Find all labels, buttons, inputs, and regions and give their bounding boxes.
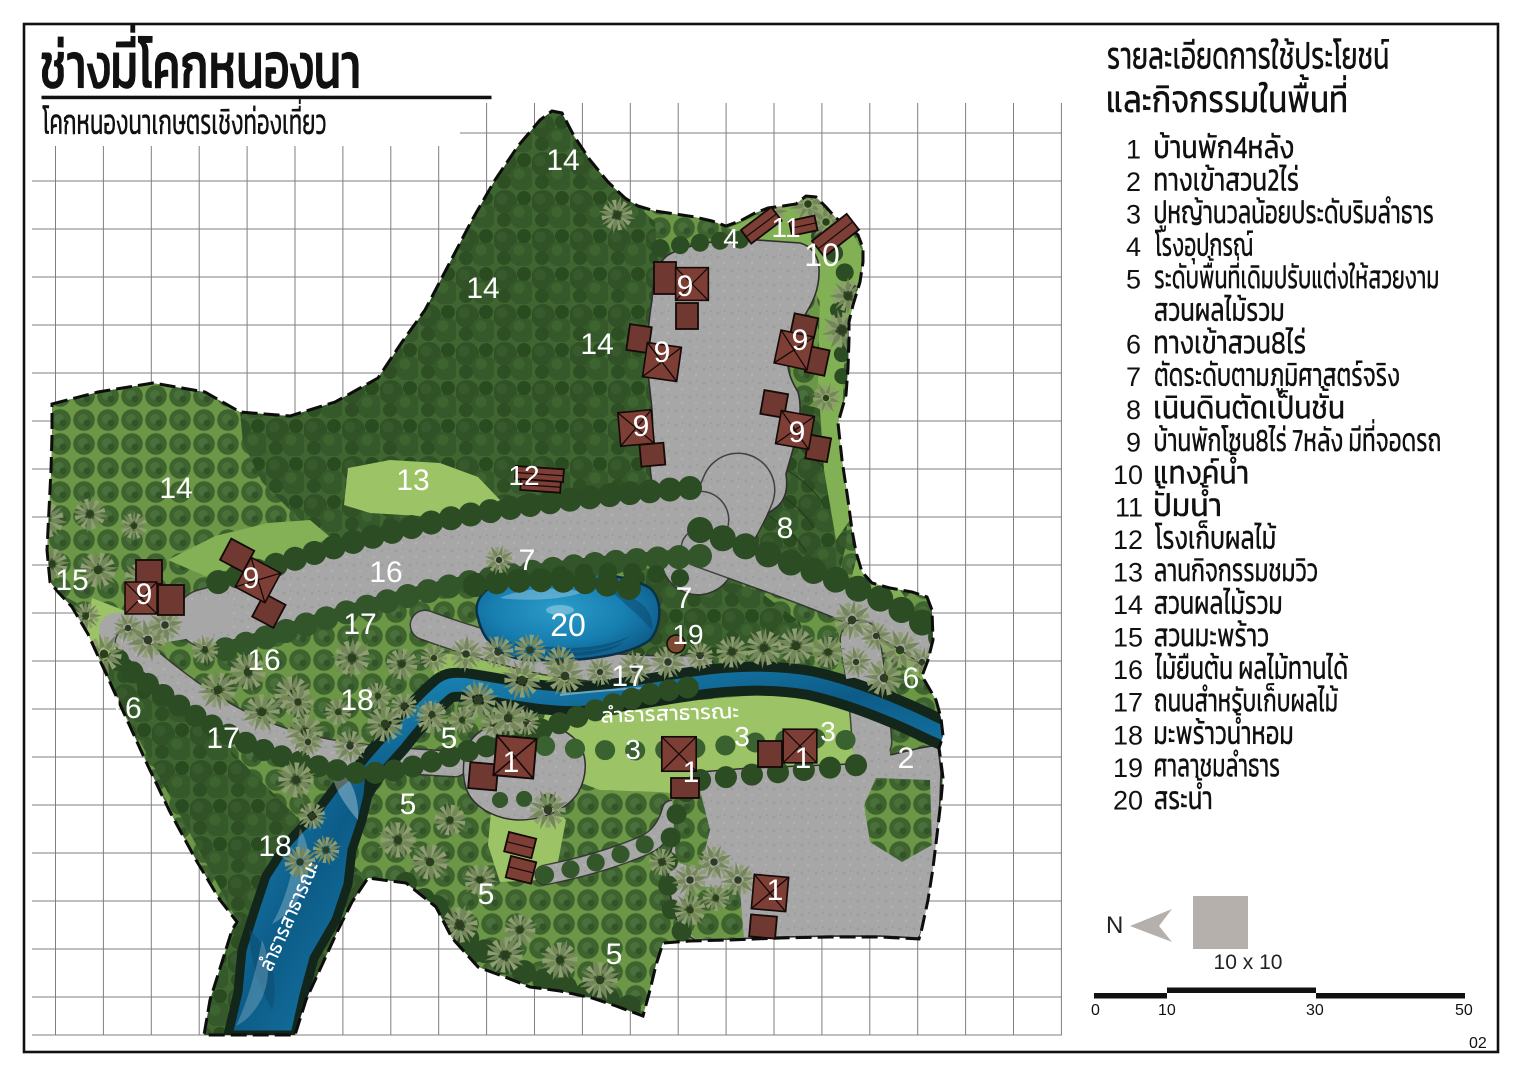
svg-text:9: 9 — [633, 410, 650, 443]
svg-text:15: 15 — [55, 564, 88, 597]
svg-text:13: 13 — [1113, 558, 1143, 588]
svg-text:12: 12 — [1113, 525, 1143, 555]
svg-text:17: 17 — [1113, 688, 1143, 718]
svg-text:9: 9 — [792, 324, 809, 357]
svg-text:4: 4 — [1126, 232, 1141, 262]
svg-text:18: 18 — [258, 830, 291, 863]
svg-text:9: 9 — [654, 336, 671, 369]
svg-text:18: 18 — [1113, 720, 1143, 750]
svg-text:10: 10 — [804, 237, 840, 273]
svg-text:14: 14 — [546, 144, 579, 177]
svg-text:1: 1 — [503, 746, 520, 779]
svg-text:8: 8 — [777, 512, 794, 545]
svg-text:19: 19 — [1113, 753, 1143, 783]
svg-text:20: 20 — [1113, 785, 1143, 815]
svg-text:0: 0 — [1091, 1002, 1100, 1019]
svg-text:3: 3 — [625, 734, 641, 765]
svg-text:10 x 10: 10 x 10 — [1214, 951, 1283, 974]
svg-text:17: 17 — [343, 608, 376, 641]
svg-text:50: 50 — [1455, 1002, 1473, 1019]
svg-text:3: 3 — [1126, 200, 1141, 230]
svg-text:16: 16 — [108, 692, 141, 725]
svg-text:3: 3 — [734, 721, 750, 752]
svg-text:10: 10 — [1113, 460, 1143, 490]
svg-text:8: 8 — [1126, 395, 1141, 425]
svg-text:6: 6 — [1126, 330, 1141, 360]
svg-text:9: 9 — [789, 416, 806, 449]
svg-text:14: 14 — [466, 272, 499, 305]
svg-text:7: 7 — [676, 582, 693, 615]
svg-text:02: 02 — [1469, 1035, 1487, 1052]
svg-text:10: 10 — [1158, 1002, 1176, 1019]
svg-text:9: 9 — [136, 578, 153, 611]
svg-text:13: 13 — [396, 464, 429, 497]
svg-text:19: 19 — [672, 619, 703, 650]
svg-text:30: 30 — [1306, 1002, 1324, 1019]
svg-text:3: 3 — [820, 716, 836, 747]
svg-text:7: 7 — [1126, 362, 1141, 392]
svg-text:1: 1 — [1126, 134, 1141, 164]
svg-text:4: 4 — [723, 223, 739, 254]
svg-text:1: 1 — [795, 742, 812, 775]
svg-text:9: 9 — [243, 562, 260, 595]
svg-text:16: 16 — [247, 644, 280, 677]
svg-text:9: 9 — [677, 270, 694, 303]
svg-text:16: 16 — [1113, 655, 1143, 685]
svg-text:5: 5 — [441, 722, 458, 755]
svg-text:5: 5 — [400, 788, 417, 821]
svg-text:20: 20 — [550, 607, 586, 643]
svg-text:17: 17 — [611, 660, 644, 693]
svg-text:1: 1 — [767, 874, 784, 907]
svg-text:11: 11 — [1115, 492, 1143, 522]
svg-text:17: 17 — [206, 722, 239, 755]
svg-text:5: 5 — [1126, 265, 1141, 295]
svg-text:11: 11 — [771, 212, 800, 243]
svg-text:15: 15 — [1113, 623, 1143, 653]
svg-text:2: 2 — [1126, 167, 1141, 197]
svg-text:12: 12 — [508, 460, 539, 491]
svg-text:2: 2 — [898, 742, 915, 775]
svg-text:18: 18 — [340, 684, 373, 717]
svg-text:9: 9 — [1126, 427, 1141, 457]
svg-text:14: 14 — [580, 328, 613, 361]
svg-text:N: N — [1106, 912, 1123, 939]
svg-text:6: 6 — [903, 662, 920, 695]
svg-text:14: 14 — [1113, 590, 1143, 620]
svg-text:5: 5 — [478, 878, 495, 911]
svg-text:16: 16 — [369, 556, 402, 589]
svg-text:5: 5 — [606, 938, 623, 971]
svg-text:14: 14 — [159, 472, 192, 505]
svg-text:7: 7 — [519, 544, 536, 577]
svg-text:1: 1 — [683, 756, 700, 789]
